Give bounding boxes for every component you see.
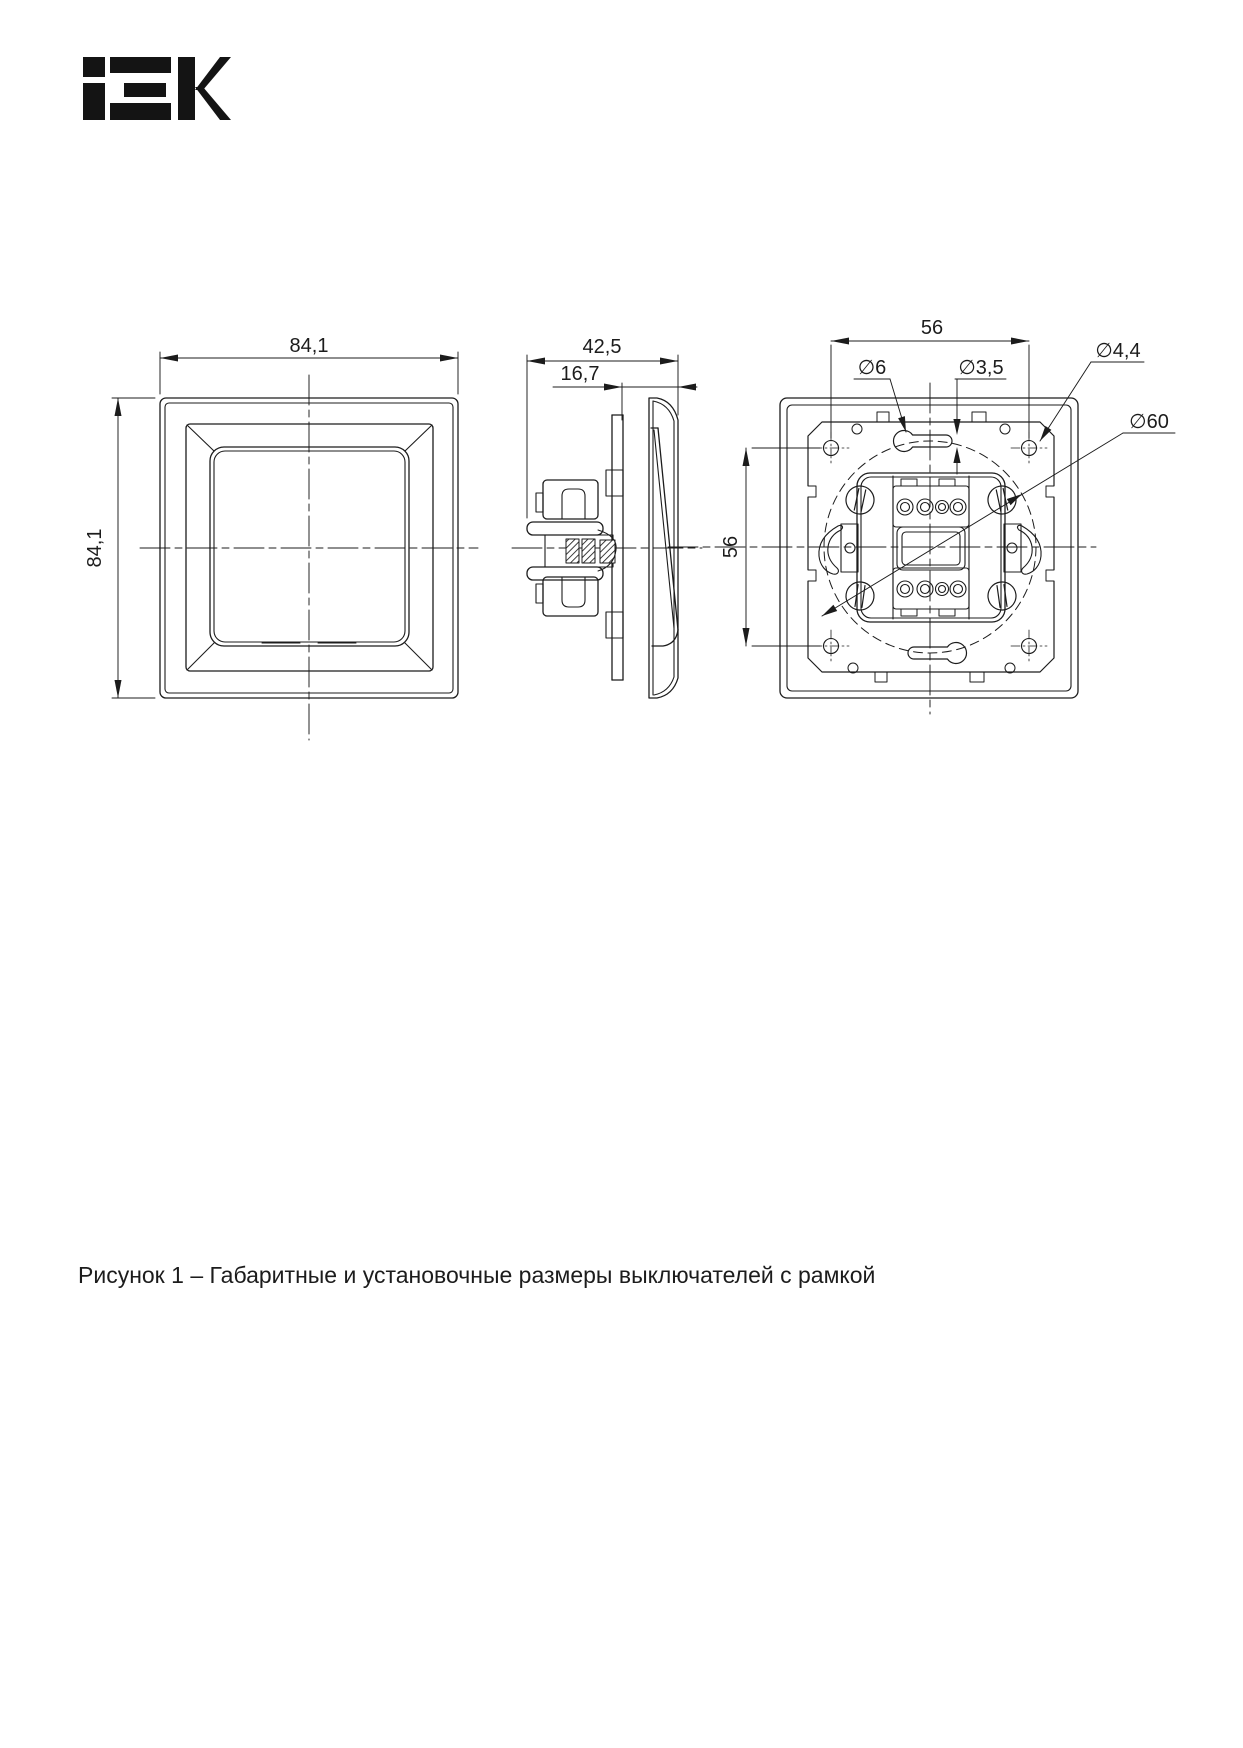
drawing-canvas: 84,1 84,1 <box>0 0 1243 1748</box>
leader-mounting-circle <box>822 433 1175 616</box>
logo-k-upper-arm <box>195 57 231 90</box>
label-slot-width: ∅3,5 <box>958 357 1003 379</box>
logo-k-lower-arm <box>195 87 231 120</box>
dim-side-depth-label: 42,5 <box>583 336 622 358</box>
front-view <box>112 352 478 740</box>
front-bevel-frame <box>186 424 433 671</box>
dim-side-depth <box>527 355 678 518</box>
side-view <box>512 355 702 698</box>
label-keyhole-diameter: ∅6 <box>858 357 887 379</box>
drawing-sheet: 84,1 84,1 <box>0 0 1243 1748</box>
back-terminal-top <box>893 479 969 527</box>
back-central-window <box>897 527 965 570</box>
dim-side-protrusion-label: 16,7 <box>561 363 600 385</box>
dim-side-protrusion <box>553 383 697 420</box>
back-terminal-bottom <box>893 568 969 616</box>
dim-front-height-label: 84,1 <box>84 529 106 568</box>
logo-i-dot <box>83 57 105 77</box>
logo-e-top-bar <box>110 57 171 73</box>
leader-slot-width <box>953 379 1006 474</box>
side-screw-block <box>545 530 616 571</box>
label-corner-hole-diameter: ∅4,4 <box>1095 340 1140 362</box>
dim-back-horizontal-label: 56 <box>921 317 943 339</box>
logo-i-stem <box>83 83 105 120</box>
front-rocker <box>210 447 409 646</box>
side-screw-2 <box>582 539 595 563</box>
back-claw-screws <box>843 483 1018 611</box>
back-support-bracket <box>857 473 1005 622</box>
dim-back-vertical-label: 56 <box>720 536 742 558</box>
label-mounting-circle-diameter: ∅60 <box>1129 411 1169 433</box>
logo-e-bottom-bar <box>110 103 171 120</box>
figure-caption: Рисунок 1 – Габаритные и установочные ра… <box>78 1262 875 1288</box>
back-small-holes <box>848 424 1015 673</box>
iek-logo <box>83 57 231 120</box>
side-screw-1 <box>566 539 579 563</box>
side-claw-top <box>536 480 598 519</box>
back-view <box>668 338 1175 715</box>
dim-front-width-label: 84,1 <box>290 335 329 357</box>
logo-e-mid-bar <box>124 83 166 97</box>
side-claw-bottom <box>536 577 598 616</box>
logo-k-stem <box>178 57 195 120</box>
